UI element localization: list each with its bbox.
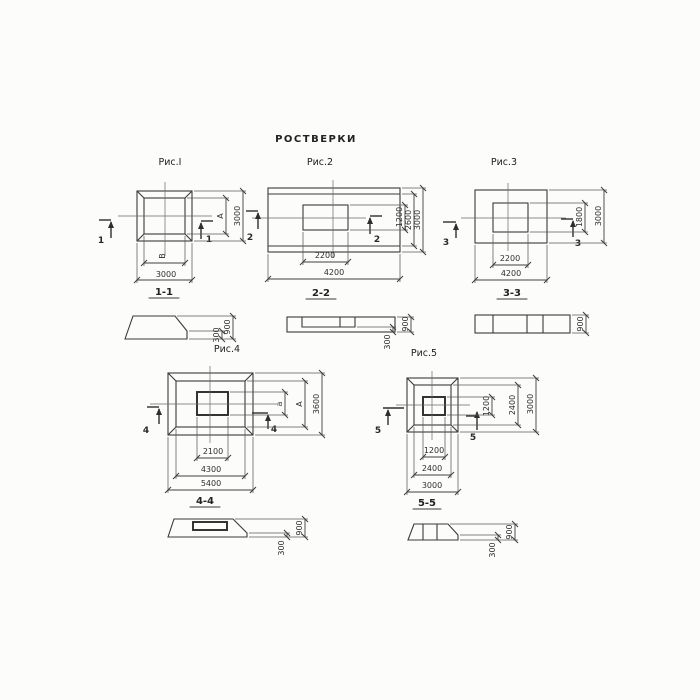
fig2-section-step-lines <box>302 317 355 327</box>
fig1-cut-marks: 1 1 <box>98 220 213 246</box>
fig4-centerlines <box>150 366 277 443</box>
fig1-section-dim-total: 900 <box>223 319 232 334</box>
fig5-section-view: 5-5 300 900 <box>408 498 518 558</box>
fig1-dim-right-outer: 3000 <box>233 206 242 226</box>
fig2-dim-bottom-inner: 2200 <box>315 251 335 260</box>
fig3-section-profile <box>475 315 570 333</box>
fig3-cut-marks: 3 3 <box>443 219 581 249</box>
fig5-dim-bottom-middle: 2400 <box>422 464 442 473</box>
fig2-cut-marks: 2 2 <box>246 211 382 245</box>
fig5-plan-core-rect <box>423 397 445 415</box>
fig5-dim-right-middle: 2400 <box>508 395 517 415</box>
fig2-band-lines <box>268 194 400 246</box>
fig4-caption: Рис.4 <box>214 344 240 355</box>
fig4-dimensions: 2100 4300 5400 а А 3600 <box>168 373 325 493</box>
fig3-cut-right-label: 3 <box>575 239 581 249</box>
fig4-cut-right-label: 4 <box>271 425 277 435</box>
fig3-section-view: 3-3 900 <box>475 288 589 333</box>
fig3-section-title: 3-3 <box>503 288 521 299</box>
fig5-cut-right-label: 5 <box>470 433 476 443</box>
fig4-dim-right-outer: 3600 <box>312 394 321 414</box>
drawing-sheet: РОСТВЕРКИ Рис.I 1 1 В 3000 <box>0 0 700 700</box>
fig5-cut-left-label: 5 <box>375 426 381 436</box>
figure-2-rostverk: Рис.2 2 2 2200 4200 1200 <box>246 157 426 350</box>
fig2-dimensions: 2200 4200 1200 2600 3000 <box>268 188 426 282</box>
fig5-dim-right-outer: 3000 <box>526 394 535 414</box>
fig4-section-title: 4-4 <box>196 496 214 507</box>
fig2-dim-right-middle: 2600 <box>404 210 413 230</box>
fig3-section-dim-total: 900 <box>576 316 585 331</box>
sheet-title: РОСТВЕРКИ <box>275 134 357 145</box>
fig2-section-profile <box>287 317 395 332</box>
fig2-caption: Рис.2 <box>307 157 333 168</box>
fig1-centerlines <box>118 182 212 256</box>
fig3-dim-bottom-inner: 2200 <box>500 254 520 263</box>
fig2-dim-bottom-outer: 4200 <box>324 268 344 277</box>
fig4-dim-right-middle: А <box>295 401 304 407</box>
fig3-plan-inner-rect <box>493 203 528 232</box>
fig3-cut-left-label: 3 <box>443 238 449 248</box>
fig1-dim-bottom-outer: 3000 <box>156 270 176 279</box>
fig4-section-dim-total: 900 <box>295 520 304 535</box>
fig4-section-view: 4-4 300 900 <box>168 496 308 556</box>
figure-5-rostverk: Рис.5 5 5 1200 2400 3000 <box>375 348 539 558</box>
fig2-plan-inner-rect <box>303 205 348 230</box>
figure-3-rostverk: Рис.3 3 3 2200 4200 1800 3000 <box>443 157 607 333</box>
fig5-dim-bottom-outer: 3000 <box>422 481 442 490</box>
fig2-section-dim-total: 900 <box>401 316 410 331</box>
fig2-dim-right-inner: 1200 <box>395 207 404 227</box>
fig2-section-dim-step: 300 <box>383 334 392 349</box>
fig3-section-joints <box>493 315 543 333</box>
fig3-dim-right-outer: 3000 <box>594 206 603 226</box>
fig2-plan-linework <box>268 188 400 252</box>
fig4-section-dim-step: 300 <box>277 540 286 555</box>
fig1-section-view: 1-1 300 900 <box>125 287 236 343</box>
drawing-canvas: РОСТВЕРКИ Рис.I 1 1 В 3000 <box>0 0 700 700</box>
fig5-caption: Рис.5 <box>411 348 437 359</box>
fig2-plan-outer-rect <box>268 188 400 252</box>
fig1-cut-left-label: 1 <box>98 236 104 246</box>
fig3-plan-outer-rect <box>475 190 547 243</box>
figure-1-rostverk: Рис.I 1 1 В 3000 А 3000 <box>98 157 246 343</box>
fig2-section-title: 2-2 <box>312 288 330 299</box>
fig4-dim-bottom-inner: 2100 <box>203 447 223 456</box>
figure-4-rostverk: Рис.4 4 4 2100 4300 5400 <box>143 344 325 556</box>
fig4-plan-core-rect <box>197 392 228 415</box>
fig5-dim-bottom-inner: 1200 <box>424 446 444 455</box>
fig5-section-title: 5-5 <box>418 498 436 509</box>
fig2-dim-right-outer: 3000 <box>413 210 422 230</box>
fig5-dim-right-inner: 1200 <box>482 396 491 416</box>
fig5-section-dim-total: 900 <box>505 524 514 539</box>
fig1-dim-bottom-inner: В <box>158 253 167 259</box>
fig3-dim-bottom-outer: 4200 <box>501 269 521 278</box>
fig5-section-dim-step: 300 <box>488 542 497 557</box>
fig3-plan-linework <box>475 190 547 243</box>
fig1-cut-right-label: 1 <box>206 235 212 245</box>
fig3-centerlines <box>461 183 566 251</box>
fig2-cut-right-label: 2 <box>374 235 380 245</box>
fig1-section-title: 1-1 <box>155 287 173 298</box>
fig4-cut-left-label: 4 <box>143 426 149 436</box>
fig4-dim-right-inner: а <box>275 401 284 406</box>
fig2-section-view: 2-2 900 300 <box>287 288 414 350</box>
fig1-caption: Рис.I <box>159 157 182 168</box>
fig1-dim-right-inner: А <box>216 213 225 219</box>
fig4-section-notch <box>193 522 227 530</box>
fig1-section-dim-step: 300 <box>212 327 221 342</box>
fig4-dim-bottom-middle: 4300 <box>201 465 221 474</box>
fig3-dim-right-inner: 1800 <box>575 207 584 227</box>
fig4-dim-bottom-outer: 5400 <box>201 479 221 488</box>
fig5-section-joints <box>423 524 437 540</box>
fig1-section-profile <box>125 316 187 339</box>
fig5-section-profile <box>408 524 458 540</box>
fig2-cut-left-label: 2 <box>247 233 253 243</box>
fig3-dimensions: 2200 4200 1800 3000 <box>475 190 607 283</box>
fig3-caption: Рис.3 <box>491 157 517 168</box>
